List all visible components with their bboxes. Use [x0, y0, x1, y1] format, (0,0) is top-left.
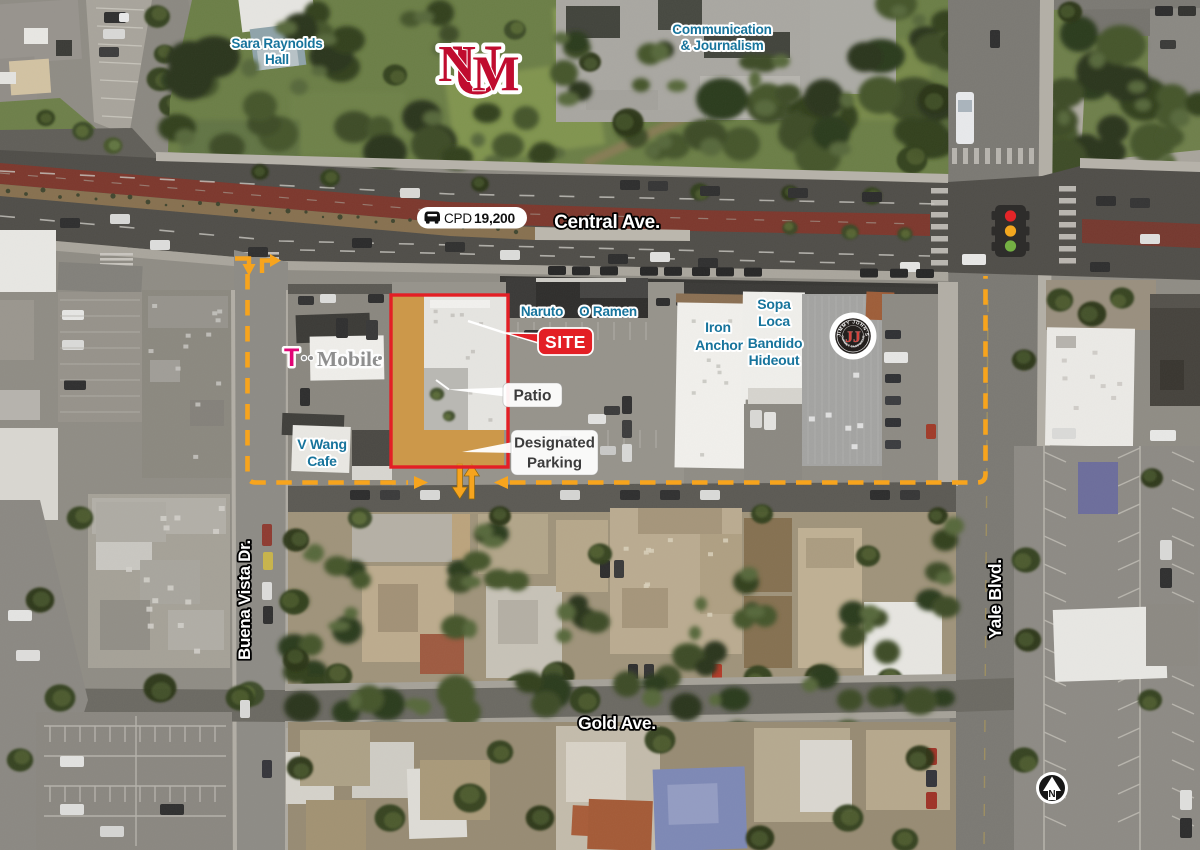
- svg-text:Gold Ave.: Gold Ave.: [578, 713, 656, 733]
- svg-text:N: N: [438, 36, 476, 93]
- svg-text:Buena Vista Dr.: Buena Vista Dr.: [235, 540, 254, 660]
- svg-text:Bandido: Bandido: [748, 335, 803, 351]
- svg-text:Iron: Iron: [705, 319, 731, 335]
- svg-text:Designated: Designated: [514, 435, 595, 452]
- svg-text:Hideout: Hideout: [749, 352, 800, 368]
- svg-text:Yale Blvd.: Yale Blvd.: [985, 559, 1005, 639]
- svg-text:& Journalism: & Journalism: [680, 38, 763, 53]
- svg-text:Anchor: Anchor: [695, 337, 744, 353]
- svg-text:O Ramen: O Ramen: [579, 304, 637, 319]
- svg-text:Sara Raynolds: Sara Raynolds: [231, 36, 322, 51]
- svg-text:V Wang: V Wang: [297, 436, 347, 452]
- svg-text:Naruto: Naruto: [521, 304, 563, 319]
- svg-text:Parking: Parking: [527, 455, 582, 472]
- svg-text:19,200: 19,200: [474, 211, 516, 226]
- svg-text:SITE: SITE: [545, 332, 586, 352]
- svg-text:JJ: JJ: [845, 329, 861, 346]
- svg-text:N: N: [1048, 789, 1055, 800]
- svg-text:Cafe: Cafe: [307, 453, 337, 469]
- svg-text:Sopa: Sopa: [757, 296, 791, 312]
- svg-text:Central Ave.: Central Ave.: [554, 212, 660, 233]
- svg-text:Hall: Hall: [265, 52, 289, 67]
- svg-text:Patio: Patio: [514, 388, 552, 405]
- svg-text:Communication: Communication: [672, 22, 771, 37]
- svg-text:M: M: [472, 45, 519, 101]
- svg-text:Loca: Loca: [758, 313, 790, 329]
- svg-text:CPD: CPD: [444, 211, 472, 226]
